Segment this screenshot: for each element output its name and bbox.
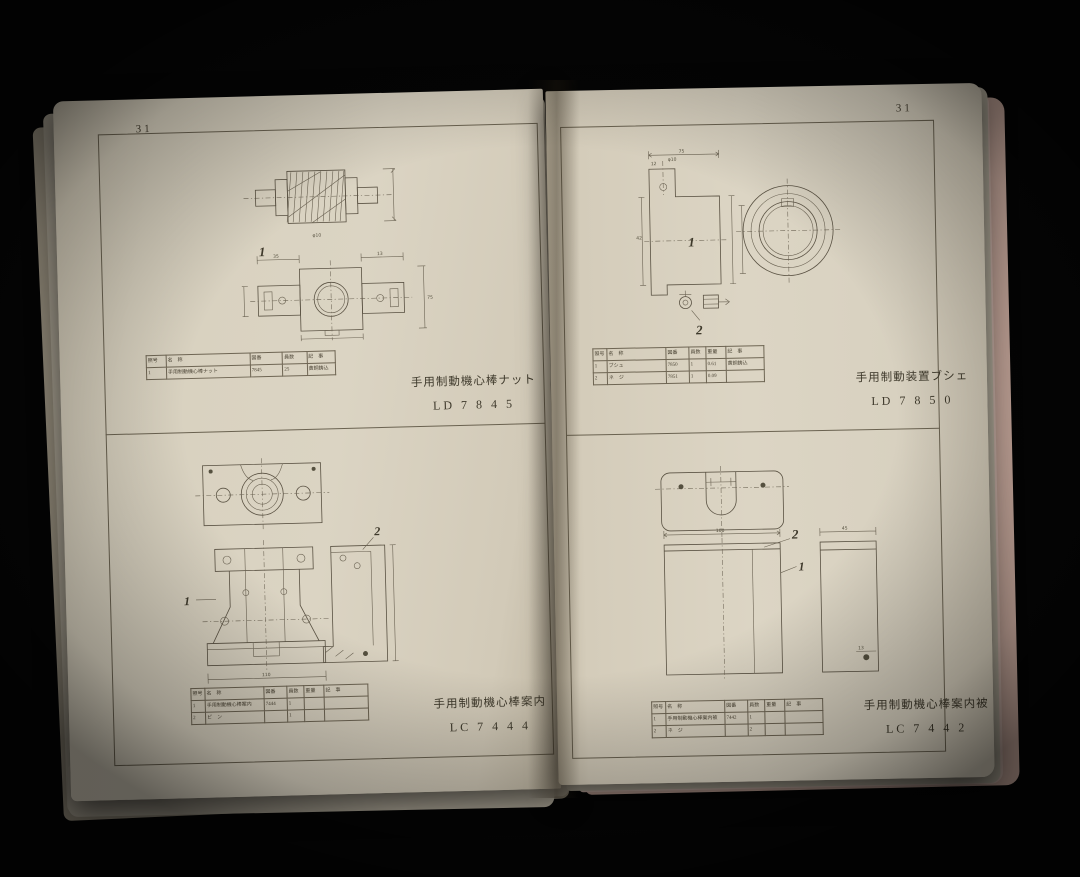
part-label: 1 [688, 234, 695, 249]
table-cell: 1 [146, 367, 166, 380]
table-cell: 黄銅鋳込 [307, 363, 336, 376]
parts-table-ld7850: 照号名 称図番員数重量記 事1ブシュ785010.61黄銅鋳込2ネ ジ78511… [592, 345, 765, 385]
table-cell: 重量 [706, 346, 726, 358]
table-cell [304, 709, 324, 722]
table-cell [785, 711, 823, 724]
part-label: 2 [373, 524, 380, 538]
caption-code: LC 7 4 4 2 [860, 720, 994, 738]
table-cell: 照号 [652, 702, 666, 714]
part-label: 1 [259, 244, 266, 259]
guide-side-view: 2 [320, 524, 399, 663]
table-cell: 重量 [304, 685, 324, 698]
table-cell: 記 事 [726, 346, 764, 359]
svg-text:12: 12 [651, 161, 657, 167]
table-cell: 照号 [593, 349, 607, 361]
left-page: 31 φ10 1 35 13 [53, 89, 561, 802]
caption-title: 手用制動機心棒案内 [417, 692, 563, 712]
table-cell: 照号 [191, 688, 205, 700]
table-cell [304, 697, 324, 710]
table-cell: 2 [191, 712, 205, 724]
table-cell: 25 [283, 363, 307, 376]
table-cell [726, 370, 764, 383]
table-cell: 1 [689, 371, 706, 383]
drawing-ld7845: φ10 1 35 13 75 [224, 153, 449, 349]
drawing-ld7850: 75 12 φ10 1 42 2 [634, 142, 848, 346]
part-label: 2 [791, 526, 799, 541]
table-cell: ピ ン [205, 711, 264, 725]
thread-shaft-view: φ10 1 [243, 169, 397, 260]
svg-text:75: 75 [427, 295, 433, 301]
table-cell: 員数 [282, 351, 306, 364]
table-cell [264, 710, 287, 723]
table-cell: 員数 [748, 700, 765, 712]
table-cell: 黄銅鋳込 [726, 358, 764, 371]
caption-ld7850: 手用制動装置ブシェ LD 7 8 5 0 [845, 367, 980, 410]
table-cell: 7850 [666, 359, 689, 371]
table-cell [725, 724, 748, 736]
table-cell [324, 708, 368, 721]
table-cell: 図番 [666, 347, 689, 359]
table-cell [765, 711, 785, 723]
table-cell: 2 [593, 373, 607, 385]
caption-title: 手用制動機心棒案内被 [859, 695, 993, 714]
caption-title: 手用制動装置ブシェ [845, 367, 979, 386]
bushing-section-view: 75 12 φ10 1 42 [635, 147, 747, 295]
table-cell: 2 [652, 726, 666, 738]
table-cell: 1 [748, 712, 765, 724]
caption-lc7442: 手用制動機心棒案内被 LC 7 4 4 2 [859, 695, 994, 738]
table-cell: 員数 [689, 347, 706, 359]
table-cell: 1 [191, 700, 205, 712]
bushing-end-view [735, 178, 841, 284]
caption-lc7444: 手用制動機心棒案内 LC 7 4 4 4 [417, 692, 564, 736]
svg-text:13: 13 [858, 645, 864, 651]
table-cell [785, 723, 823, 736]
svg-text:42: 42 [636, 235, 642, 241]
cover-side-view: 45 13 [820, 525, 879, 672]
parts-table-ld7845: 照号名 称図番員数記 事1手用制動機心棒ナット784525黄銅鋳込 [146, 350, 337, 380]
table-cell: 7442 [725, 712, 748, 724]
table-cell: 1 [287, 710, 304, 722]
part-label: 1 [798, 559, 804, 573]
table-cell: 7851 [666, 371, 689, 383]
svg-text:45: 45 [842, 526, 848, 532]
photo-background: { "palette": { "background": "#050505", … [0, 0, 1080, 877]
set-screw-detail: 2 [679, 290, 730, 338]
table-cell [765, 723, 785, 735]
guide-top-view [194, 456, 330, 531]
table-cell: 記 事 [307, 351, 336, 364]
caption-code: LD 7 8 5 0 [845, 392, 979, 410]
svg-text:35: 35 [273, 254, 279, 260]
svg-text:φ10: φ10 [312, 233, 321, 239]
table-cell: 記 事 [785, 699, 823, 712]
table-cell: 照号 [146, 355, 166, 368]
table-cell: 0.09 [706, 370, 726, 382]
page-number-right: 31 [896, 102, 913, 114]
svg-text:φ10: φ10 [668, 157, 677, 163]
table-cell: 図番 [264, 686, 287, 699]
table-cell: 1 [593, 361, 607, 373]
drawing-lc7444: 1 110 2 [168, 453, 406, 689]
table-cell: 1 [652, 714, 666, 726]
table-cell: 0.61 [706, 358, 726, 370]
parts-table-lc7444: 照号名 称図番員数重量記 事1手用制動機心棒案内744412ピ ン1 [190, 683, 369, 725]
table-cell: 1 [287, 698, 304, 710]
svg-text:110: 110 [262, 672, 271, 678]
table-cell: 図番 [250, 352, 283, 365]
svg-text:75: 75 [679, 149, 685, 155]
part-label: 2 [695, 322, 703, 337]
guide-front-view: 1 110 [183, 539, 331, 685]
table-cell: ネ ジ [666, 724, 725, 737]
table-cell: 員数 [287, 686, 304, 698]
caption-title: 手用制動機心棒ナット [400, 371, 546, 391]
table-cell: ネ ジ [607, 371, 666, 384]
table-cell: 7444 [264, 698, 287, 711]
right-page: 31 75 12 φ10 1 42 [545, 83, 994, 785]
caption-ld7845: 手用制動機心棒ナット LD 7 8 4 5 [400, 371, 547, 415]
table-cell: 2 [748, 724, 765, 736]
svg-text:13: 13 [377, 251, 383, 257]
table-cell: 図番 [725, 700, 748, 712]
table-cell: 手用制動機心棒ナット [166, 365, 250, 379]
table-cell: 1 [689, 359, 706, 371]
cover-front-view: 100 2 1 [664, 526, 807, 681]
table-cell: 7845 [250, 364, 283, 377]
svg-text:100: 100 [716, 528, 725, 534]
parts-table-lc7442: 照号名 称図番員数重量記 事1手用制動機心棒案内被744212ネ ジ2 [651, 698, 824, 738]
table-cell: 重量 [765, 699, 785, 711]
part-label: 1 [184, 594, 190, 608]
drawing-lc7442: 100 2 1 45 13 [651, 463, 885, 682]
nut-block-view: 35 13 75 [241, 250, 434, 343]
